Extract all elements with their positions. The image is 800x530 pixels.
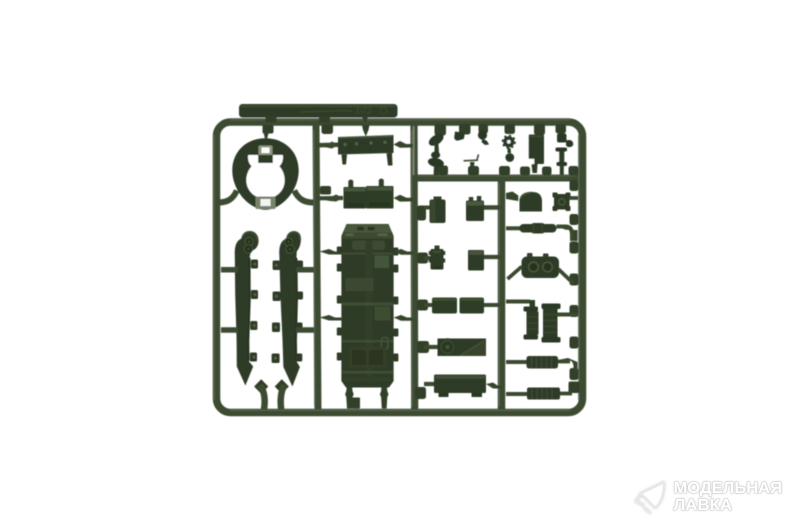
svg-text:МОДЕЛЬНАЯ: МОДЕЛЬНАЯ <box>674 480 783 497</box>
svg-text:1/72: 1/72 <box>355 106 372 116</box>
svg-text:ЛАВКА: ЛАВКА <box>674 497 733 514</box>
